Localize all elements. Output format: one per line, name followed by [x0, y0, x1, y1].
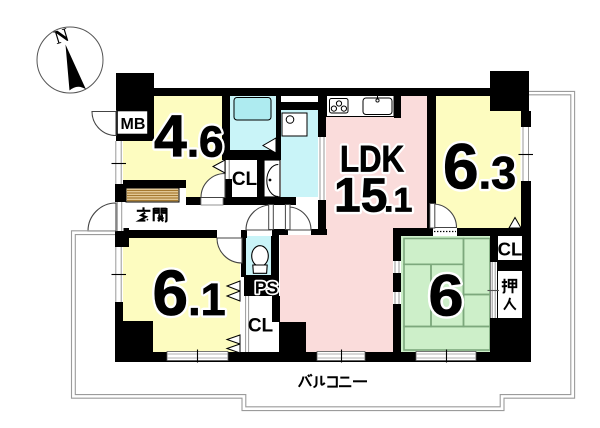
svg-text:.1: .1	[384, 182, 412, 220]
svg-text:15: 15	[334, 170, 387, 223]
svg-text:6: 6	[429, 264, 464, 329]
svg-text:CL: CL	[498, 239, 523, 260]
svg-text:PS: PS	[255, 278, 278, 298]
svg-text:MB: MB	[121, 116, 146, 133]
svg-text:CL: CL	[248, 316, 274, 337]
svg-text:CL: CL	[232, 169, 258, 190]
